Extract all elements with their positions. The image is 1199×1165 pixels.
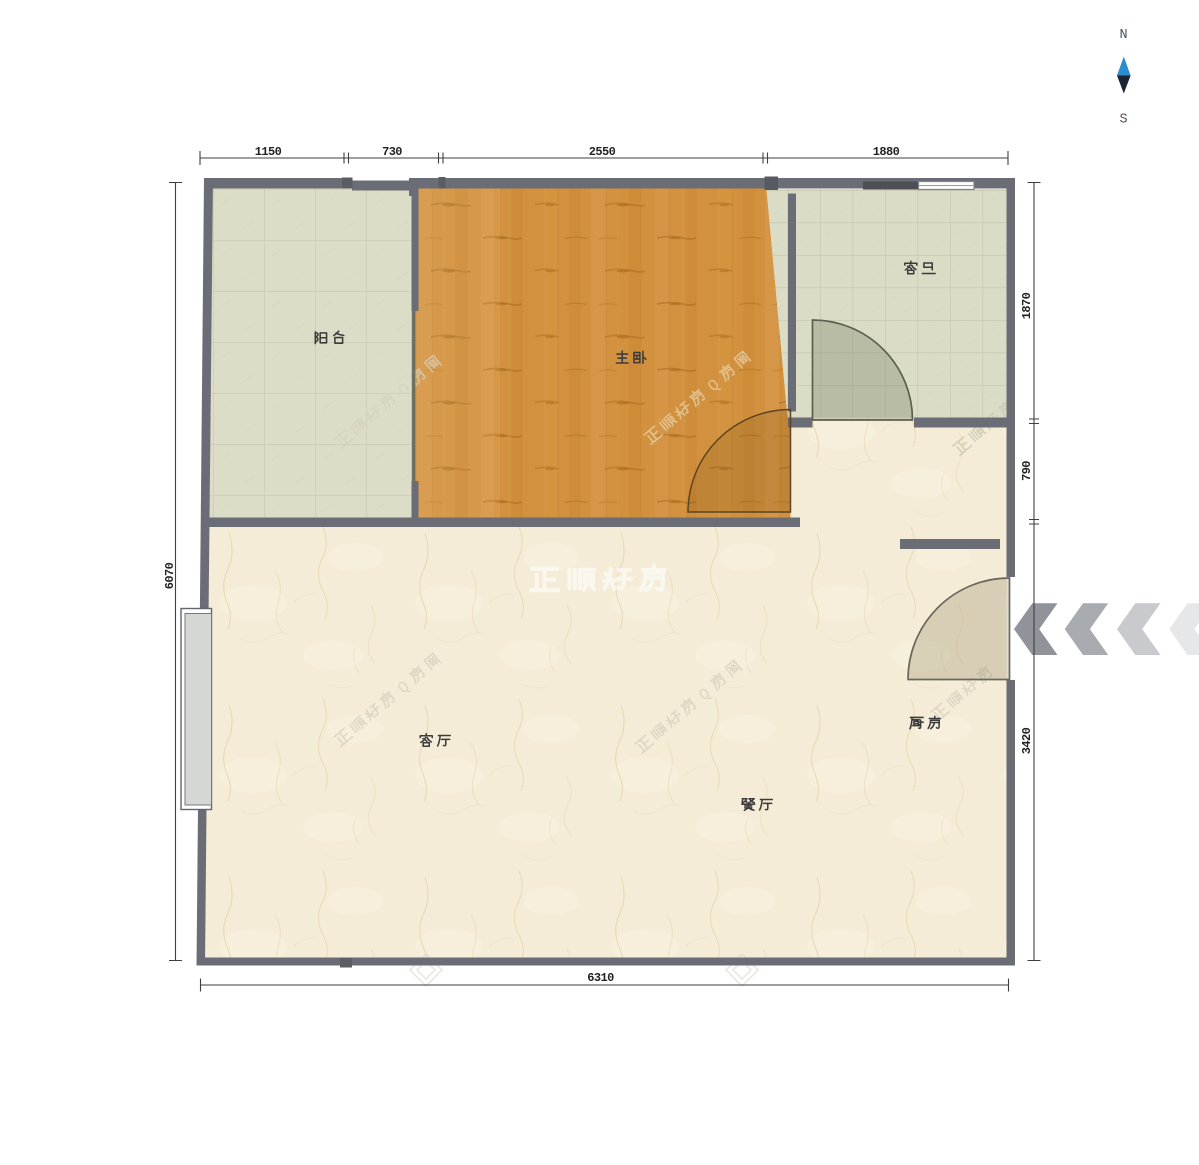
svg-text:S: S [1119,113,1127,128]
svg-text:1880: 1880 [873,145,900,159]
svg-text:1870: 1870 [1020,292,1034,319]
svg-text:730: 730 [382,145,402,159]
svg-text:6310: 6310 [587,971,614,985]
svg-text:N: N [1119,28,1127,43]
svg-text:6070: 6070 [163,562,177,589]
svg-text:2550: 2550 [589,145,616,159]
svg-text:790: 790 [1020,461,1034,481]
svg-text:3420: 3420 [1020,727,1034,754]
svg-text:1150: 1150 [255,145,282,159]
